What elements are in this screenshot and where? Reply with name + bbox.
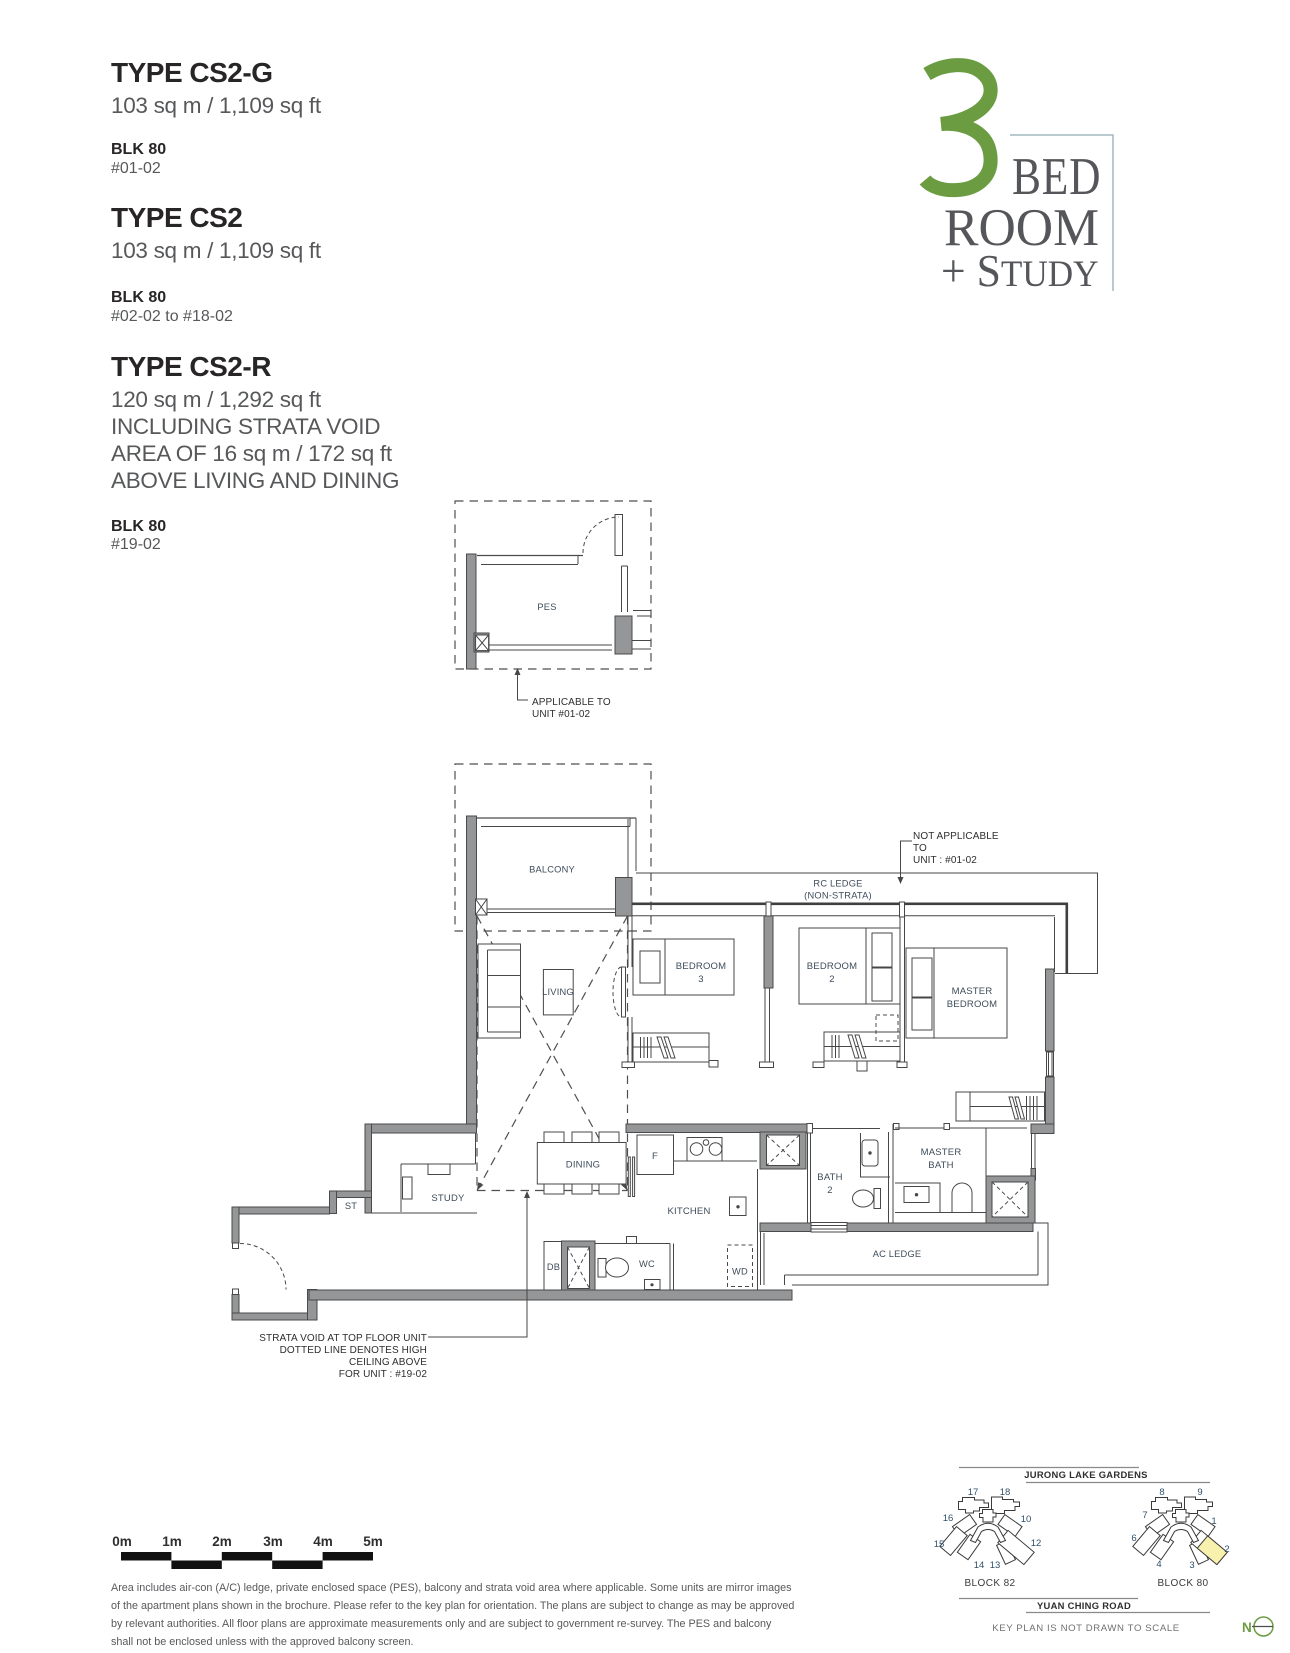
svg-text:3: 3	[1189, 1560, 1194, 1571]
svg-text:ABOVE LIVING AND DINING: ABOVE LIVING AND DINING	[111, 468, 399, 493]
svg-text:7: 7	[1142, 1510, 1147, 1521]
svg-text:+ STUDY: + STUDY	[941, 245, 1098, 296]
svg-text:KEY PLAN IS NOT DRAWN TO SCALE: KEY PLAN IS NOT DRAWN TO SCALE	[992, 1623, 1180, 1634]
svg-text:BLOCK 82: BLOCK 82	[964, 1578, 1015, 1589]
svg-text:NOT APPLICABLE: NOT APPLICABLE	[913, 831, 999, 842]
svg-text:#19-02: #19-02	[111, 536, 161, 553]
svg-text:8: 8	[1159, 1487, 1164, 1498]
svg-text:4: 4	[1156, 1559, 1161, 1570]
svg-text:6: 6	[1131, 1533, 1136, 1544]
svg-text:FOR UNIT : #19-02: FOR UNIT : #19-02	[339, 1369, 428, 1380]
svg-text:LIVING: LIVING	[542, 987, 574, 997]
svg-text:9: 9	[1197, 1487, 1202, 1498]
svg-text:2: 2	[827, 1185, 832, 1196]
svg-text:AC LEDGE: AC LEDGE	[873, 1249, 922, 1259]
svg-text:CEILING ABOVE: CEILING ABOVE	[349, 1357, 427, 1368]
svg-text:#02-02 to #18-02: #02-02 to #18-02	[111, 308, 233, 325]
svg-text:ST: ST	[345, 1201, 357, 1211]
svg-text:10: 10	[1021, 1514, 1032, 1525]
svg-text:DINING: DINING	[566, 1160, 600, 1171]
svg-text:12: 12	[1031, 1538, 1042, 1549]
svg-text:5m: 5m	[363, 1534, 383, 1549]
svg-text:TYPE CS2-G: TYPE CS2-G	[111, 57, 272, 88]
svg-text:17: 17	[968, 1487, 979, 1498]
svg-text:BEDROOM: BEDROOM	[676, 961, 727, 972]
svg-text:1m: 1m	[162, 1534, 182, 1549]
svg-text:RC LEDGE: RC LEDGE	[813, 879, 862, 889]
svg-text:DOTTED LINE DENOTES HIGH: DOTTED LINE DENOTES HIGH	[280, 1345, 427, 1356]
svg-text:BALCONY: BALCONY	[529, 865, 575, 875]
svg-text:120 sq m / 1,292 sq ft: 120 sq m / 1,292 sq ft	[111, 387, 322, 412]
svg-text:2m: 2m	[212, 1534, 232, 1549]
svg-text:18: 18	[1000, 1487, 1011, 1498]
svg-text:BLK 80: BLK 80	[111, 141, 166, 158]
svg-text:(NON-STRATA): (NON-STRATA)	[804, 891, 872, 901]
svg-text:BATH: BATH	[817, 1172, 842, 1183]
svg-text:Area includes air-con (A/C) le: Area includes air-con (A/C) ledge, priva…	[111, 1582, 792, 1594]
svg-text:PES: PES	[537, 602, 556, 612]
svg-text:UNIT #01-02: UNIT #01-02	[532, 709, 591, 720]
svg-text:N: N	[1242, 1620, 1252, 1635]
svg-text:2: 2	[1224, 1544, 1229, 1555]
svg-text:BEDROOM: BEDROOM	[807, 961, 858, 972]
svg-text:#01-02: #01-02	[111, 160, 161, 177]
svg-text:TYPE CS2: TYPE CS2	[111, 202, 242, 233]
svg-text:STUDY: STUDY	[431, 1193, 465, 1204]
svg-text:AREA OF 16 sq m / 172 sq ft: AREA OF 16 sq m / 172 sq ft	[111, 441, 393, 466]
svg-text:4m: 4m	[313, 1534, 333, 1549]
svg-text:BATH: BATH	[928, 1160, 953, 1171]
svg-text:by relevant authorities. All f: by relevant authorities. All floor plans…	[111, 1618, 772, 1630]
svg-text:BED: BED	[1012, 148, 1101, 206]
svg-text:KITCHEN: KITCHEN	[667, 1206, 710, 1217]
svg-text:UNIT : #01-02: UNIT : #01-02	[913, 855, 977, 866]
svg-text:DB: DB	[547, 1262, 560, 1272]
svg-text:JURONG LAKE GARDENS: JURONG LAKE GARDENS	[1024, 1469, 1147, 1480]
svg-text:3m: 3m	[263, 1534, 283, 1549]
svg-text:F: F	[652, 1151, 658, 1162]
svg-text:MASTER: MASTER	[952, 986, 993, 997]
svg-text:BEDROOM: BEDROOM	[947, 999, 998, 1010]
svg-text:TYPE CS2-R: TYPE CS2-R	[111, 351, 271, 382]
svg-text:103 sq m / 1,109 sq ft: 103 sq m / 1,109 sq ft	[111, 93, 322, 118]
svg-text:103 sq m / 1,109 sq ft: 103 sq m / 1,109 sq ft	[111, 238, 322, 263]
svg-text:15: 15	[934, 1539, 945, 1550]
svg-text:MASTER: MASTER	[921, 1147, 962, 1158]
svg-text:BLK 80: BLK 80	[111, 289, 166, 306]
svg-text:WC: WC	[639, 1259, 655, 1269]
svg-text:14: 14	[974, 1560, 985, 1571]
svg-text:APPLICABLE TO: APPLICABLE TO	[532, 697, 611, 708]
svg-text:3: 3	[698, 974, 703, 985]
svg-text:TO: TO	[913, 843, 927, 854]
svg-text:WD: WD	[732, 1267, 748, 1277]
svg-text:YUAN CHING ROAD: YUAN CHING ROAD	[1037, 1600, 1131, 1611]
svg-text:STRATA VOID AT TOP FLOOR UNIT: STRATA VOID AT TOP FLOOR UNIT	[259, 1333, 427, 1344]
svg-text:2: 2	[829, 974, 834, 985]
svg-text:of the apartment plans shown i: of the apartment plans shown in the broc…	[111, 1600, 794, 1612]
svg-text:13: 13	[990, 1560, 1001, 1571]
svg-text:BLK 80: BLK 80	[111, 518, 166, 535]
svg-text:BLOCK 80: BLOCK 80	[1157, 1578, 1208, 1589]
svg-text:INCLUDING STRATA VOID: INCLUDING STRATA VOID	[111, 414, 380, 439]
svg-text:0m: 0m	[112, 1534, 132, 1549]
svg-text:16: 16	[943, 1513, 954, 1524]
svg-text:1: 1	[1211, 1516, 1216, 1527]
svg-text:shall not be enclosed unless w: shall not be enclosed unless with the ap…	[111, 1636, 414, 1648]
